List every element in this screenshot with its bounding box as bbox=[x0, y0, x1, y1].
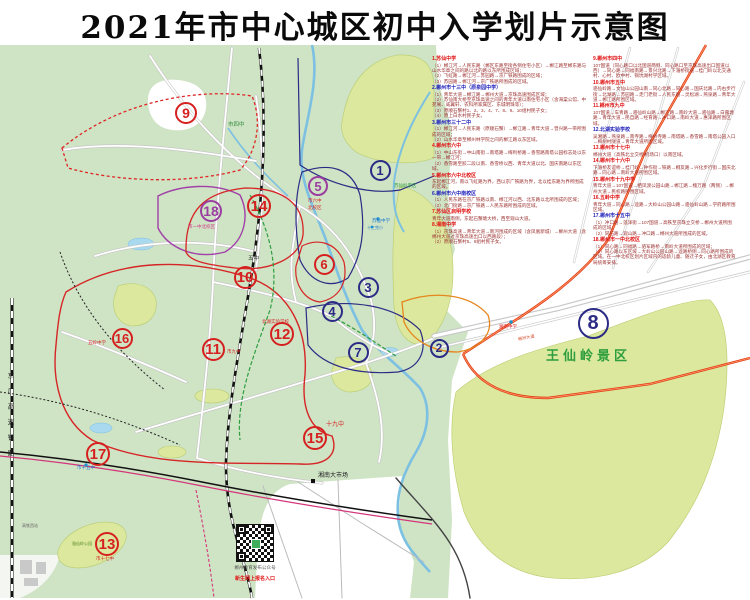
map-label: 市十七中 bbox=[96, 557, 114, 562]
legend-entry-text: 青年大道南侧，东起石蟹塘大桥，西至观山大道。 bbox=[432, 216, 588, 221]
legend-entry-text: （2）香雪路至胶二段以南、香雪桥以西、青年大道以北、国庆南路以东区域。 bbox=[432, 161, 588, 172]
zone-marker-15: 15 bbox=[303, 426, 327, 450]
legend-entry-text: 青年大道→同心路→逵路→大岭山公园山路→骆仙岭山路→学府路所围区域。 bbox=[593, 202, 736, 213]
legend-entry-text: （3）苏园路→郴江河→京广铁路所围成的区域。 bbox=[432, 79, 588, 84]
qr-caption: 郴州教育发布公众号 bbox=[232, 565, 278, 571]
zone-marker-5: 5 bbox=[308, 176, 328, 196]
legend-entry-text: 107国道→车青路→骆仙岭山路→郴江路→南岭大道→骆仙路→白露塘路→青年大道→民… bbox=[593, 110, 736, 126]
legend-entry-text: 下湄桥友谊桥→桂门岭→钟作街→铁路→桐友路→兴化步行街→国庆北路→同心路→南岭大… bbox=[593, 165, 736, 176]
zone-marker-7: 7 bbox=[348, 342, 369, 363]
map-label: 湘南大市场 bbox=[318, 473, 348, 479]
legend-entry-text: 青年大道→107国道→栖凤渡公园山路→郴江路→槐万路（两侧）→郴州大道→民权路所… bbox=[593, 183, 736, 194]
legend-entry-text: （2）同心路以东区域→大岭山公园山路→逵路桥侧→同心路所围成的区域。在一中北校区… bbox=[593, 249, 736, 265]
legend-entry-text: 骆仙岭路→文仙山公园山南→同心北路→同心路→国庆北路→内右步行街→北湖路→苏园路… bbox=[593, 86, 736, 102]
map-label: 湘南中学 bbox=[499, 325, 517, 330]
map-label: 苏仙中学 bbox=[372, 219, 390, 224]
map-label: 五中 bbox=[248, 257, 259, 263]
zone-marker-8: 8 bbox=[578, 308, 609, 339]
legend-entry-text: 吴湘路→燕泉路→南寺路→梅桥寺路→南塔路→香雪路→南塔公园入口→梅树村隧道→青年… bbox=[593, 134, 736, 145]
legend-entry-text: 东起郴江河，南以飞虹路为界，西以京广铁路为界，北以桂东路为界所围成的区域。 bbox=[432, 179, 588, 190]
zone-marker-18: 18 bbox=[200, 200, 222, 222]
qr-block: 郴州教育发布公众号 新生网上报名入口 bbox=[232, 524, 278, 582]
map-label: 市四中 bbox=[228, 123, 245, 129]
zone-marker-10: 10 bbox=[234, 266, 257, 289]
legend-entry-text: （4）原上白水村民子女。 bbox=[432, 113, 588, 118]
qr-finder-icon bbox=[237, 525, 246, 534]
zone-marker-3: 3 bbox=[358, 277, 379, 298]
zone-marker-14: 14 bbox=[247, 194, 271, 218]
legend-entry-text: （2）山水华章至郴州林学院之间的郴江路以东区域。 bbox=[432, 137, 588, 142]
map-label: 北湖实验学校 bbox=[262, 320, 289, 325]
map-label: 北校区 bbox=[308, 206, 322, 211]
qr-finder-icon bbox=[264, 525, 273, 534]
zone-marker-12: 12 bbox=[270, 322, 294, 346]
map-label: 市十五中 bbox=[77, 466, 95, 471]
map-label: 十九中 bbox=[326, 422, 344, 428]
zone-marker-4: 4 bbox=[322, 301, 343, 322]
enroll-entry-label: 新生网上报名入口 bbox=[232, 575, 278, 582]
qr-logo-icon bbox=[251, 539, 261, 549]
qr-finder-icon bbox=[237, 552, 246, 561]
legend-entry-text: （1）郴江河→人民东路（郴区东路至街各侧住宅小区）→郴江路至郴东路与山水华章之间… bbox=[432, 63, 588, 74]
zone-marker-9: 9 bbox=[175, 102, 197, 124]
legend-column-2: 9.郴州市四中107国道（同心路口以北国道两侧、同心路口至京珠高速出口国道以西）… bbox=[593, 55, 736, 265]
map-label: 五岭中学 bbox=[88, 341, 106, 346]
railway-label: 京广高速铁路 bbox=[4, 372, 14, 465]
legend-entry-text: （1）冲口路→莲泽街→107国道→高铁至京珠立交桥→郴州大道所围成的区域； bbox=[593, 220, 736, 231]
legend-entry-text: 107国道（同心路口以北国道两侧、同心路口至京珠高速出口国道以西）→同心路→同福… bbox=[593, 63, 736, 79]
legend-entry-text: （2）苏仙南大桥至京珠高速之间的青年大道以南住宅小区（含海棠公馆、中苑阁、威翼轩… bbox=[432, 97, 588, 108]
zone-marker-13: 13 bbox=[95, 532, 119, 556]
legend-entry-text: （2）原顺石蟹村5、6组村民子女。 bbox=[432, 239, 588, 244]
map-label: 高铁西站 bbox=[22, 524, 38, 528]
map-page: 2021年市中心城区初中入学划片示意图 1.苏仙中学（1）郴江河→人民东路（郴区… bbox=[0, 0, 750, 600]
map-label: 王仙岭景区 bbox=[546, 349, 631, 362]
zone-marker-16: 16 bbox=[112, 328, 133, 349]
legend-entry-text: （1）人民东路在京广铁路以南、郴江河以西、北东路以北所围成的区域； bbox=[432, 197, 588, 202]
zone-marker-17: 17 bbox=[86, 442, 110, 466]
map-label: 十三完小 bbox=[367, 226, 383, 230]
map-label: 苏仙岭景区 bbox=[394, 184, 417, 189]
legend-column-1: 1.苏仙中学（1）郴江河→人民东路（郴区东路至街各侧住宅小区）→郴江路至郴东路与… bbox=[432, 55, 588, 265]
legend: 1.苏仙中学（1）郴江河→人民东路（郴区东路至街各侧住宅小区）→郴江路至郴东路与… bbox=[432, 55, 736, 265]
page-title: 2021年市中心城区初中入学划片示意图 bbox=[0, 2, 750, 47]
zone-marker-11: 11 bbox=[202, 338, 225, 361]
map-label: 市一中北校区 bbox=[188, 225, 215, 230]
legend-entry-text: （2）北门街路→京广铁路→人民东路所围成的区域。 bbox=[432, 203, 588, 208]
qr-code bbox=[236, 524, 274, 562]
map-label: 市六中 bbox=[308, 199, 322, 204]
zone-marker-2: 2 bbox=[430, 339, 449, 358]
map-label: 骆仙岭公园 bbox=[72, 542, 92, 546]
legend-entry-text: （1）中山东街→中山南街→南塔路→梅利桥路→香雪路南塔公园标志处以东一带→郴江河… bbox=[432, 150, 588, 161]
legend-entry-text: （1）京珠高速→青年大道→南河围成的区域（含凤凰新城）→郴州大道（含郴州大道过京… bbox=[432, 229, 588, 240]
map-label: 市九中 bbox=[227, 350, 241, 355]
legend-entry-text: （2）同石路→观山路→冲口路→郴州大道所围成的区域。 bbox=[593, 231, 736, 236]
zone-marker-6: 6 bbox=[314, 254, 335, 275]
zone-marker-1: 1 bbox=[370, 160, 391, 181]
legend-entry-text: （1）郴江河→人民东路（原顺石蟹）→郴江路→青年大道→曾兴路一带所围成的区域； bbox=[432, 126, 588, 137]
legend-entry-text: 郴州大道（高铁北立交桥/机场口）以南区域。 bbox=[593, 152, 736, 157]
